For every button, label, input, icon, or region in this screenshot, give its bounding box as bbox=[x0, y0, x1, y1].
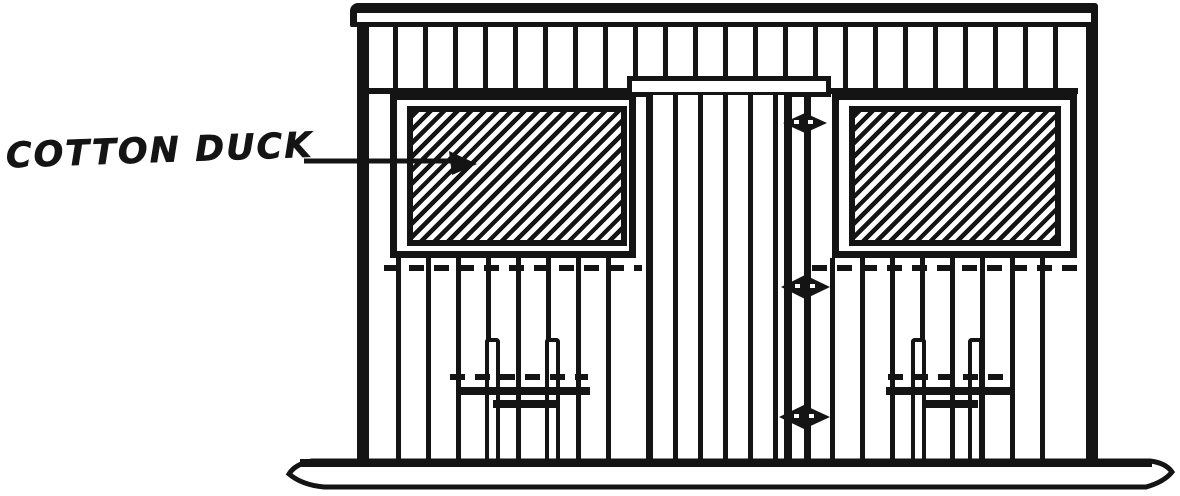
right-cotton-duck-panel bbox=[849, 106, 1061, 246]
right-lower-siding-boards bbox=[830, 258, 1070, 463]
left-sill-dash-line bbox=[384, 265, 642, 271]
left-lower-siding-boards bbox=[396, 258, 634, 463]
left-support-rail-upper bbox=[456, 387, 590, 395]
left-cotton-duck-panel bbox=[407, 106, 627, 246]
right-support-rail-lower bbox=[924, 400, 978, 408]
right-corner-board bbox=[1086, 13, 1098, 464]
base-skid bbox=[289, 461, 1172, 487]
cotton-duck-label: COTTON DUCK bbox=[5, 126, 318, 183]
door-jamb-strip bbox=[804, 95, 811, 463]
right-support-dash-line bbox=[888, 374, 1008, 380]
figure-canvas: COTTON DUCK bbox=[0, 0, 1180, 496]
door-header-track bbox=[627, 76, 831, 97]
right-sill-dash-line bbox=[812, 265, 1078, 271]
left-support-rail-lower bbox=[493, 400, 557, 408]
left-support-dash-line bbox=[450, 374, 588, 380]
left-corner-board bbox=[357, 13, 369, 464]
roof-fascia bbox=[350, 3, 1098, 27]
right-support-rail-upper bbox=[886, 387, 1012, 395]
door bbox=[646, 95, 792, 463]
